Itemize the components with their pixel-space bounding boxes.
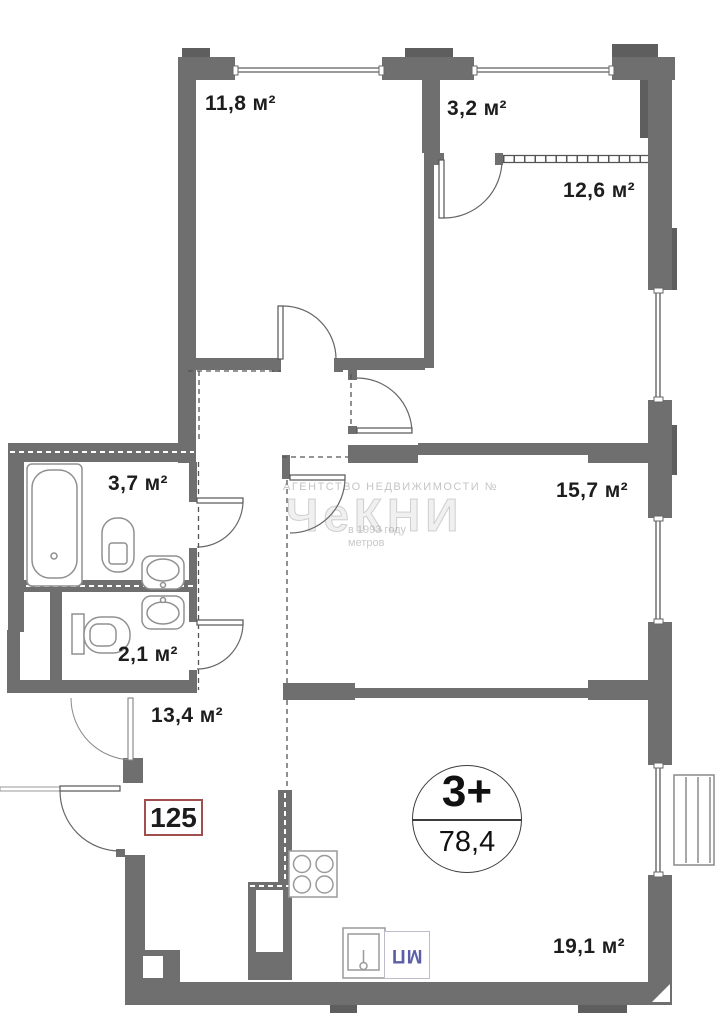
door-balcony (439, 160, 502, 218)
apartment-type-badge: 3+ 78,4 (412, 765, 522, 873)
sink-icon-wc (142, 596, 184, 629)
lobby-wall-line (0, 787, 60, 791)
badge-divider (412, 819, 522, 821)
door-bathroom (197, 498, 243, 547)
window-room-15-7 (648, 516, 672, 624)
apartment-number-box: 125 (144, 799, 203, 836)
area-label-wc-2-1: 2,1 м² (118, 643, 178, 667)
window-balcony (472, 57, 614, 80)
door-vestibule (71, 698, 133, 760)
balcony-railing (674, 775, 714, 865)
washing-machine-label: МП (391, 944, 422, 966)
area-label-room-15-7: 15,7 м² (556, 479, 628, 503)
floor-plan-drawing (0, 0, 725, 1024)
door-room-12-6 (357, 378, 412, 433)
area-label-room-12-6: 12,6 м² (563, 179, 635, 203)
total-area-label: 78,4 (413, 822, 521, 862)
glazed-partition (503, 156, 648, 163)
area-label-kitchen-living-19-1: 19,1 м² (553, 935, 625, 959)
rooms-count-label: 3+ (413, 766, 521, 818)
kitchen-sink-icon (343, 928, 385, 978)
sink-icon-bathroom (142, 556, 184, 589)
door-entry (60, 786, 120, 851)
window-room-11-8 (233, 57, 384, 80)
bathtub-icon (27, 464, 82, 586)
toilet-icon-bathroom (102, 518, 134, 572)
door-room-11-8 (278, 306, 336, 359)
window-room-12-6 (648, 288, 672, 402)
door-wc (197, 620, 243, 669)
window-kitchen-living (648, 763, 672, 877)
area-label-bathroom-3-7: 3,7 м² (108, 472, 168, 496)
area-label-balcony-3-2: 3,2 м² (447, 97, 507, 121)
area-label-hallway-13-4: 13,4 м² (151, 704, 223, 728)
door-room-15-7 (290, 475, 345, 533)
floor-plan: 11,8 м² 3,2 м² 12,6 м² 3,7 м² 15,7 м² 2,… (0, 0, 725, 1024)
washing-machine-icon: МП (384, 931, 430, 979)
stove-icon (289, 851, 337, 897)
area-label-room-11-8: 11,8 м² (205, 92, 276, 116)
apartment-number: 125 (150, 802, 197, 834)
